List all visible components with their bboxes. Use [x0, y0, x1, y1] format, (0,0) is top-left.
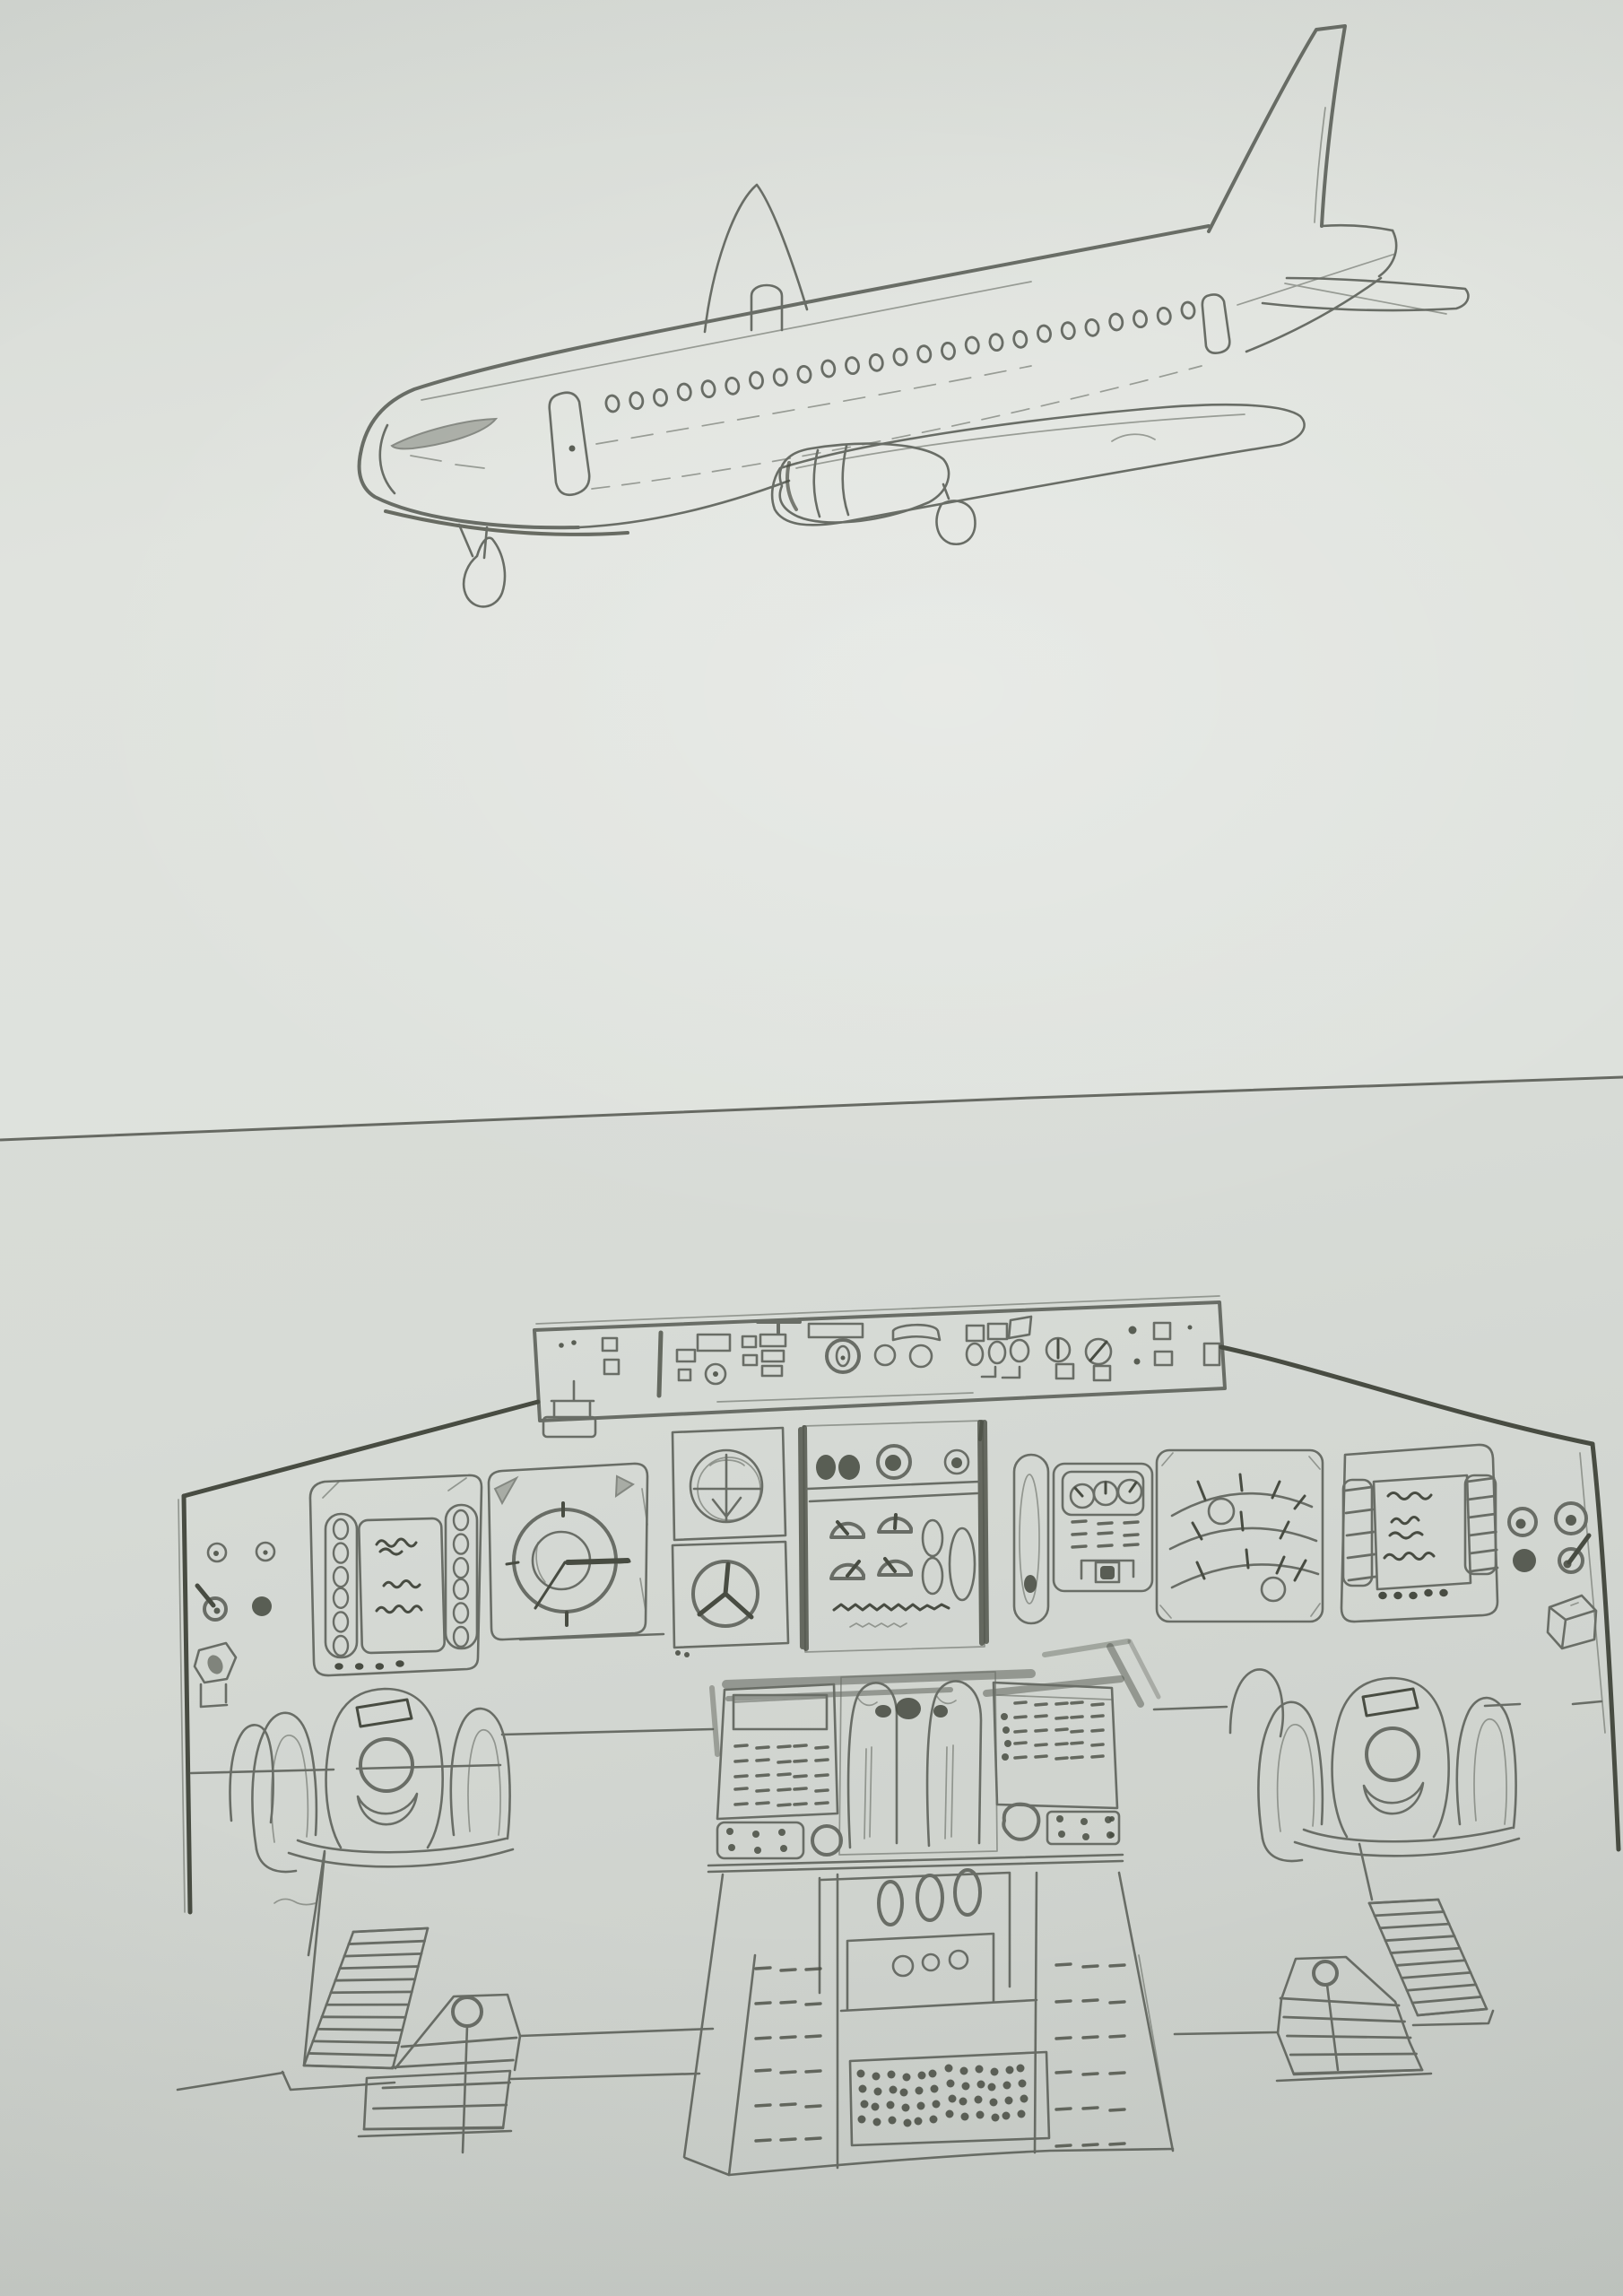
- photographed-sketch-paper: [0, 0, 1623, 2296]
- airplane-sketch: [360, 26, 1469, 606]
- sketch-canvas: [0, 0, 1623, 2296]
- airplane-cabin-windows: [605, 301, 1196, 413]
